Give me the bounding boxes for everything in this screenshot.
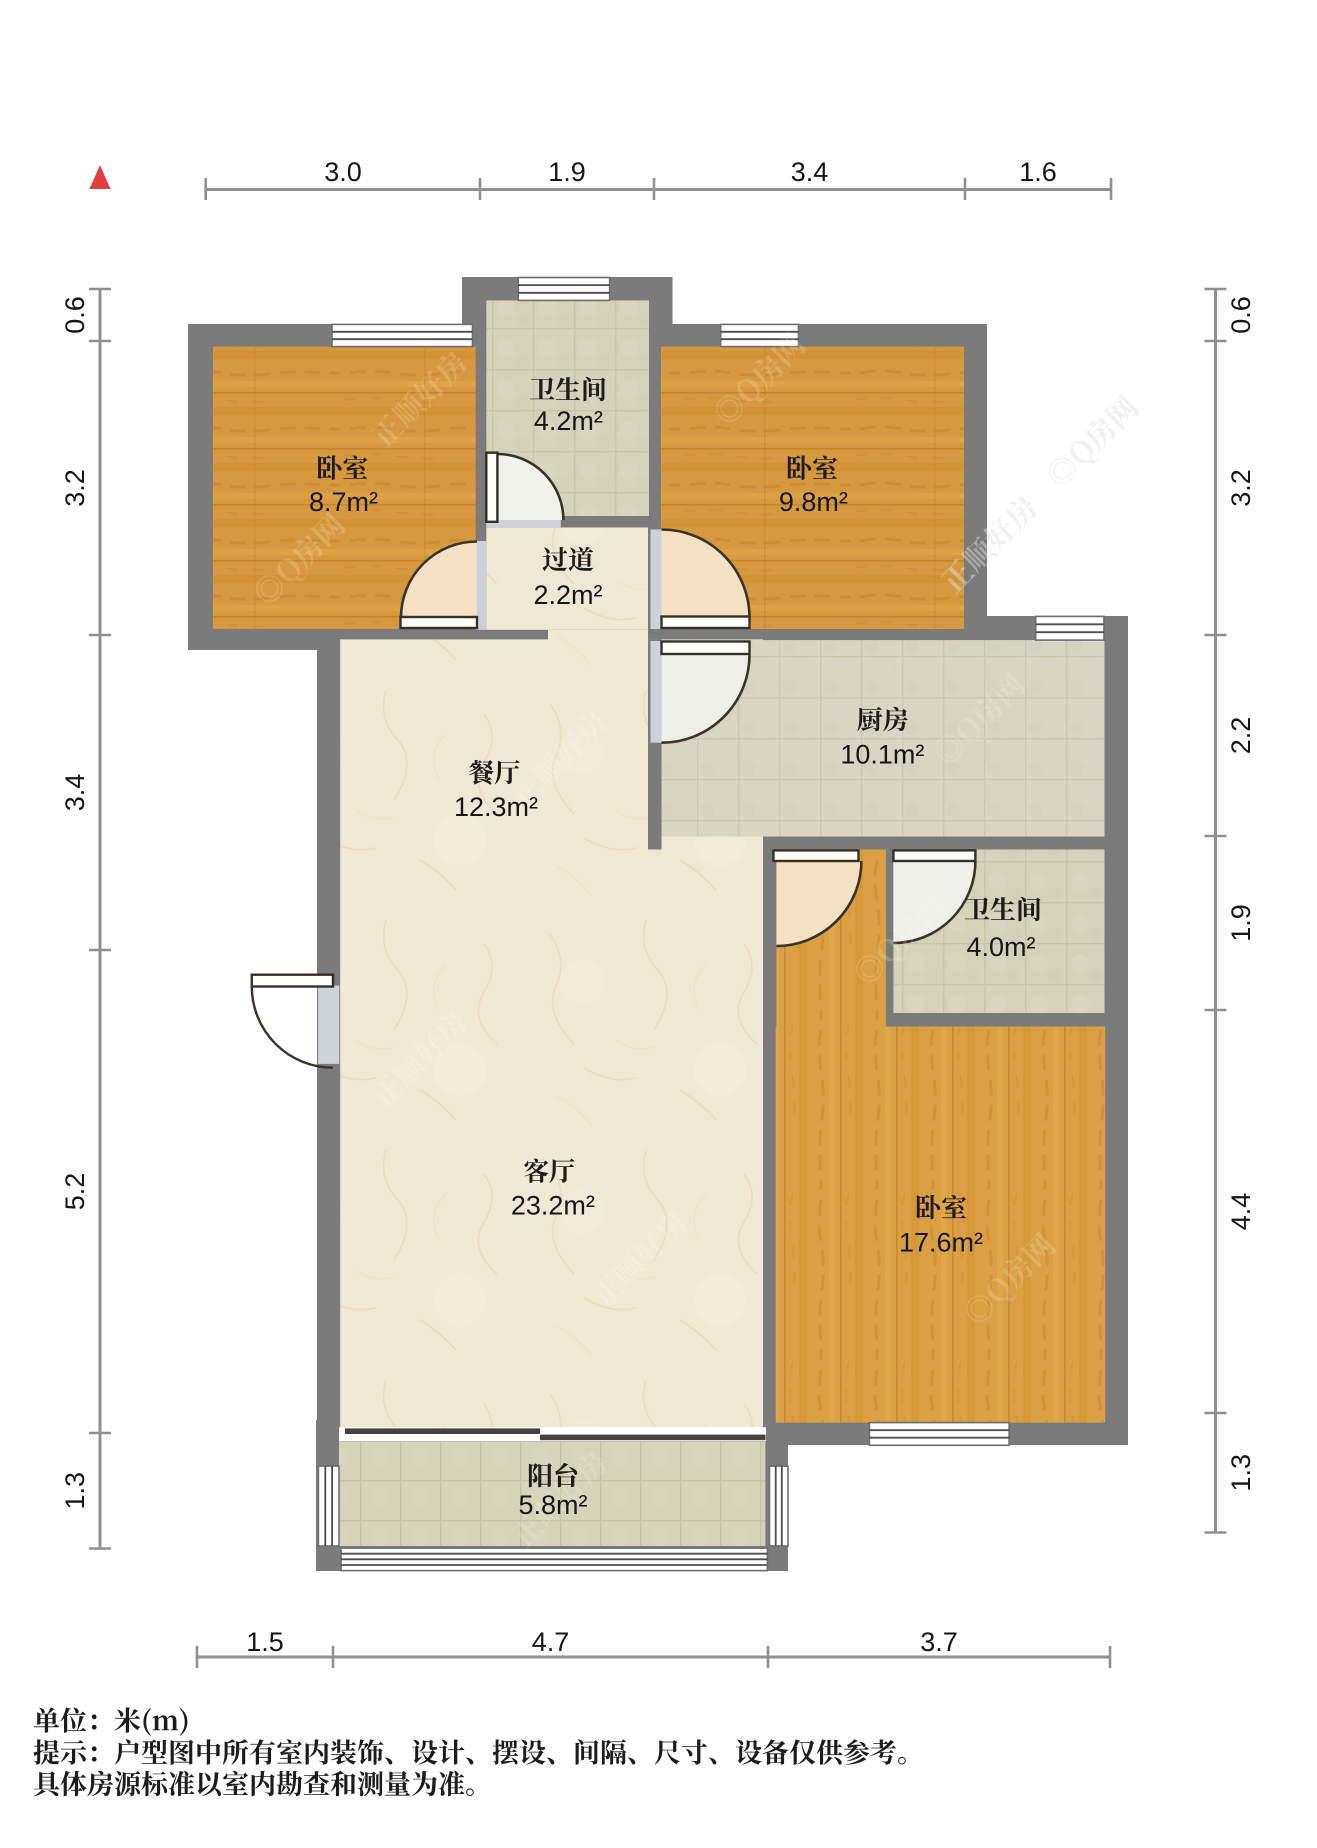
svg-text:12.3m²: 12.3m² [454, 792, 538, 822]
svg-text:1.6: 1.6 [1019, 157, 1057, 187]
svg-text:1.3: 1.3 [60, 1472, 90, 1510]
svg-text:3.0: 3.0 [324, 157, 362, 187]
svg-text:5.8m²: 5.8m² [518, 1490, 587, 1520]
svg-text:3.4: 3.4 [791, 157, 829, 187]
svg-text:3.7: 3.7 [920, 1627, 958, 1657]
svg-text:1.9: 1.9 [548, 157, 586, 187]
svg-text:3.2: 3.2 [60, 469, 90, 507]
svg-text:23.2m²: 23.2m² [511, 1191, 595, 1221]
svg-text:3.4: 3.4 [60, 774, 90, 812]
svg-text:4.2m²: 4.2m² [534, 406, 603, 436]
svg-text:3.2: 3.2 [1226, 469, 1256, 507]
svg-text:2.2m²: 2.2m² [533, 580, 602, 610]
svg-text:5.2: 5.2 [60, 1173, 90, 1211]
svg-text:0.6: 0.6 [60, 296, 90, 334]
svg-text:4.4: 4.4 [1226, 1193, 1256, 1231]
svg-text:8.7m²: 8.7m² [309, 487, 378, 517]
svg-text:0.6: 0.6 [1226, 296, 1256, 334]
svg-text:9.8m²: 9.8m² [779, 487, 848, 517]
svg-text:4.7: 4.7 [532, 1627, 570, 1657]
svg-text:10.1m²: 10.1m² [840, 740, 924, 770]
svg-text:1.5: 1.5 [246, 1627, 284, 1657]
svg-text:2.2: 2.2 [1226, 717, 1256, 755]
svg-text:1.3: 1.3 [1226, 1454, 1256, 1492]
svg-text:4.0m²: 4.0m² [966, 932, 1035, 962]
svg-text:17.6m²: 17.6m² [899, 1228, 983, 1258]
svg-text:1.9: 1.9 [1226, 904, 1256, 942]
